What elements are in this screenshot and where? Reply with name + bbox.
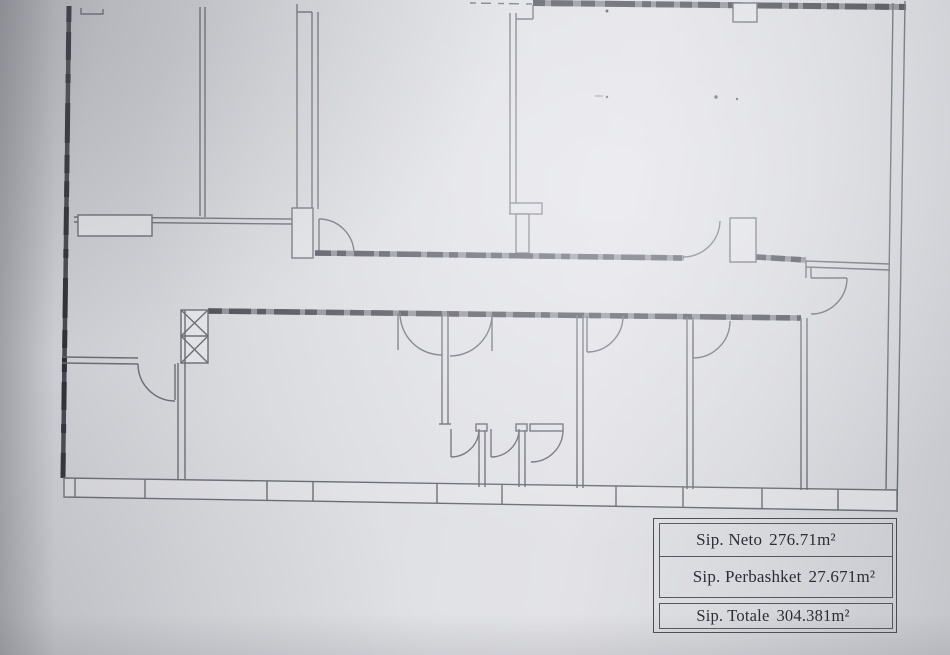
area-value: 304.381m² [776, 606, 849, 626]
scan-specks [595, 10, 738, 101]
lower-left-wall [62, 357, 138, 364]
top-left-wall-bracket [81, 8, 103, 14]
door-arc [811, 278, 847, 314]
partition-wall-f [687, 317, 693, 489]
door-arc [400, 313, 442, 355]
door-arc [693, 321, 730, 358]
door-post-2 [730, 218, 756, 262]
wall-c-flange [510, 203, 542, 214]
lower-left-door [138, 364, 175, 401]
niche-walls [806, 261, 890, 278]
top-wall-faint [470, 3, 533, 4]
window-sill [78, 215, 152, 236]
door-arc [450, 314, 492, 356]
right-exterior-wall-inner [886, 3, 893, 489]
corridor-north-wall [315, 253, 684, 258]
bottom-terrace-band [64, 478, 897, 511]
table-row: Sip. Neto 276.71m² [659, 523, 893, 557]
area-label: Sip. Neto [696, 530, 762, 550]
corridor-south-wall [208, 311, 801, 318]
partition-wall-a [200, 7, 205, 217]
partition-wall-e [577, 315, 583, 488]
stall-partition [479, 430, 485, 487]
door-arc [531, 431, 563, 462]
partition-wall-h [178, 363, 185, 479]
door-arc [451, 429, 479, 457]
area-value: 276.71m² [769, 530, 836, 550]
area-label: Sip. Totale [696, 606, 769, 626]
door-arc [491, 429, 519, 457]
scanned-floor-plan-page: { "document": { "kind": "scanned archite… [0, 0, 950, 655]
area-label: Sip. Perbashket [693, 567, 802, 587]
partition-wall-g [801, 318, 807, 490]
right-niche-door [806, 261, 890, 314]
stall-lintel [530, 424, 563, 431]
partition-wall-d [439, 313, 451, 424]
table-row: Sip. Totale 304.381m² [659, 603, 893, 629]
area-value: 27.671m² [809, 567, 876, 587]
door-arc [587, 316, 623, 352]
mid-wall-left [74, 208, 354, 258]
corridor-north-doors [683, 218, 756, 262]
door-arc [138, 364, 175, 401]
stall-partition [519, 430, 525, 487]
top-column [733, 3, 757, 22]
shaft-wall-b [297, 4, 318, 211]
wall-c-post [516, 214, 529, 253]
door-post-1 [292, 208, 313, 258]
wc-stalls [451, 424, 563, 487]
area-summary-table: Sip. Neto 276.71m² Sip. Perbashket 27.67… [653, 518, 897, 633]
stair-shaft [181, 310, 208, 363]
right-exterior-wall-outer [897, 1, 905, 512]
door-arc [319, 219, 354, 254]
door-arc [683, 221, 720, 257]
table-row: Sip. Perbashket 27.671m² [659, 557, 893, 598]
partition-wall-c [510, 5, 533, 203]
interior-walls-upper [81, 3, 757, 253]
hatched-walls [208, 253, 806, 318]
